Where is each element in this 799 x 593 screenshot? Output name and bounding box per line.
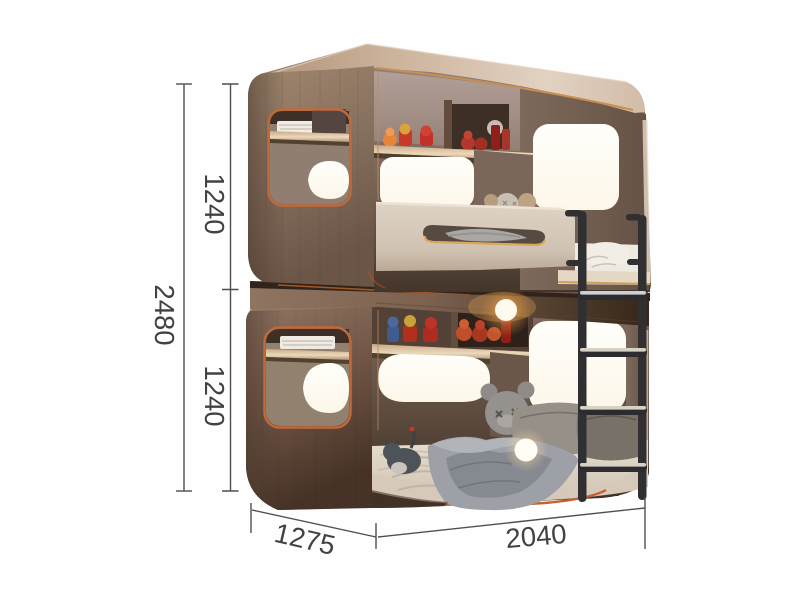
svg-text:1240: 1240	[199, 365, 230, 426]
svg-text:2480: 2480	[149, 284, 180, 345]
svg-text:2040: 2040	[504, 518, 568, 554]
svg-text:1240: 1240	[199, 173, 230, 234]
